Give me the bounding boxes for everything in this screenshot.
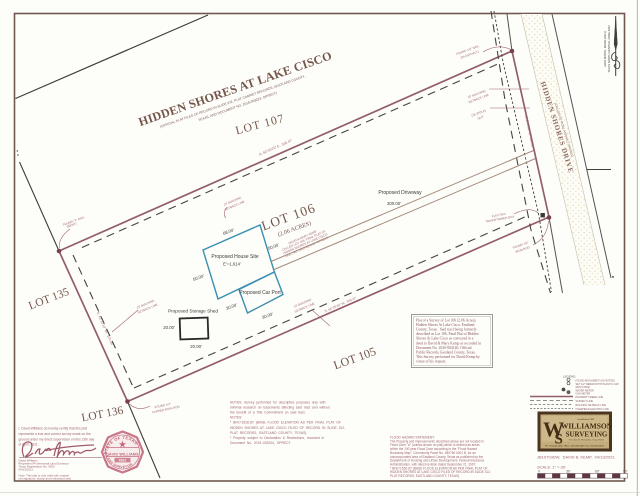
svg-text:minimal research on Easemen: minimal research on Easements affecting … xyxy=(230,406,330,410)
svg-text:BUILDING SETBACK LINE: BUILDING SETBACK LINE xyxy=(576,404,607,407)
svg-text:red signature, stamp and embos: red signature, stamp and embossed seal. xyxy=(19,477,72,481)
svg-text:20.00': 20.00' xyxy=(163,325,175,330)
svg-text:TEXAS NORTH CENTRAL ZONE 4202: TEXAS NORTH CENTRAL ZONE 4202 xyxy=(607,25,611,73)
svg-text:WILLIAMSON: WILLIAMSON xyxy=(561,422,613,431)
svg-text:of April, 2021.: of April, 2021. xyxy=(19,443,39,447)
svg-text:SCALE: 1" = 30': SCALE: 1" = 30' xyxy=(537,465,566,470)
svg-text:60': 60' xyxy=(595,470,600,474)
svg-text:HIDDEN SHORES AT LAKE CISC: HIDDEN SHORES AT LAKE CISCO FILED OF REC… xyxy=(230,426,345,430)
svg-text:E'=1,614': E'=1,614' xyxy=(223,262,241,267)
svg-text:virtue of his request.: virtue of his request. xyxy=(416,359,446,363)
svg-text:★: ★ xyxy=(119,440,127,449)
svg-text:* Property subject to Decl: * Property subject to Declaration & Rest… xyxy=(230,436,324,440)
svg-text:Proposed Driveway: Proposed Driveway xyxy=(378,190,422,196)
svg-text:300.00': 300.00' xyxy=(387,201,401,206)
svg-text:This Survey performed for Davi: This Survey performed for David Kemp by xyxy=(416,355,480,359)
svg-text:P.O. Box 34, Rising Star, Texa: P.O. Box 34, Rising Star, Texas 76471 xyxy=(569,439,605,442)
svg-text:PLAT RECORDS, EASTLAND COUN: PLAT RECORDS, EASTLAND COUNTY, TEXAS) xyxy=(230,431,306,435)
svg-text:PROPERTY/DEED LINE: PROPERTY/DEED LINE xyxy=(576,396,604,399)
svg-text:I, David Williams do hereby ce: I, David Williams do hereby certify that… xyxy=(19,427,87,431)
svg-text:represents a true and correct: represents a true and correct survey mad… xyxy=(19,432,91,436)
svg-text:NOTES:: NOTES: xyxy=(230,416,242,420)
svg-text:SUBJECT LINE: SUBJECT LINE xyxy=(576,400,594,403)
svg-text:DAVID WILLIAMS: DAVID WILLIAMS xyxy=(106,453,139,457)
svg-text:the benefit of a Title Co: the benefit of a Title Commitment on sai… xyxy=(230,411,306,415)
svg-text:Proposed Car Port: Proposed Car Port xyxy=(239,290,281,296)
svg-text:deed to David & Mary Kemp as r: deed to David & Mary Kemp as recorded in xyxy=(416,341,481,345)
svg-text:04/13/2021: 04/13/2021 xyxy=(19,468,34,472)
svg-text:SURVEYING: SURVEYING xyxy=(566,431,608,439)
svg-text:LEGEND:: LEGEND: xyxy=(563,375,576,379)
svg-text:20.00': 20.00' xyxy=(190,344,202,349)
svg-text:PLAT RECORDS, EASTLAND COUNTY,: PLAT RECORDS, EASTLAND COUNTY, TEXAS) xyxy=(390,474,459,478)
svg-text:6502: 6502 xyxy=(119,458,127,462)
svg-text:Ph: 254-643-1400 Office: 254-: Ph: 254-643-1400 Office: 254-488-3630 Fa… xyxy=(545,446,605,448)
svg-text:90': 90' xyxy=(623,470,628,474)
svg-text:ground under my direct supervi: ground under my direct supervision on th… xyxy=(19,437,95,441)
svg-text:* BFE=1528.20' (BASE FLOOD: * BFE=1528.20' (BASE FLOOD ELEVATION AS … xyxy=(230,421,341,425)
svg-text:OVERHEAD ELECTRIC LINE: OVERHEAD ELECTRIC LINE xyxy=(576,408,610,411)
svg-text:Proposed Storage Shed: Proposed Storage Shed xyxy=(168,309,218,314)
svg-text:0: 0 xyxy=(538,470,540,474)
svg-text:Shores At Lake Cisco as convey: Shores At Lake Cisco as conveyed in a xyxy=(416,337,474,341)
svg-text:GRID NORTH, NAD83 (2011): GRID NORTH, NAD83 (2011) xyxy=(603,31,607,67)
svg-text:Document No. 2019–003224, O: Document No. 2019–003224, OPRECT. xyxy=(230,441,291,445)
svg-text:30': 30' xyxy=(566,470,571,474)
svg-text:Proposed House Site: Proposed House Site xyxy=(211,254,258,260)
svg-text:JB10703DW, DAVID B. KEMP, 04: JB10703DW, DAVID B. KEMP, 04/13/2021 xyxy=(537,455,615,460)
svg-text:NOTES: Survey performed for: NOTES: Survey performed for descriptive … xyxy=(230,401,326,405)
